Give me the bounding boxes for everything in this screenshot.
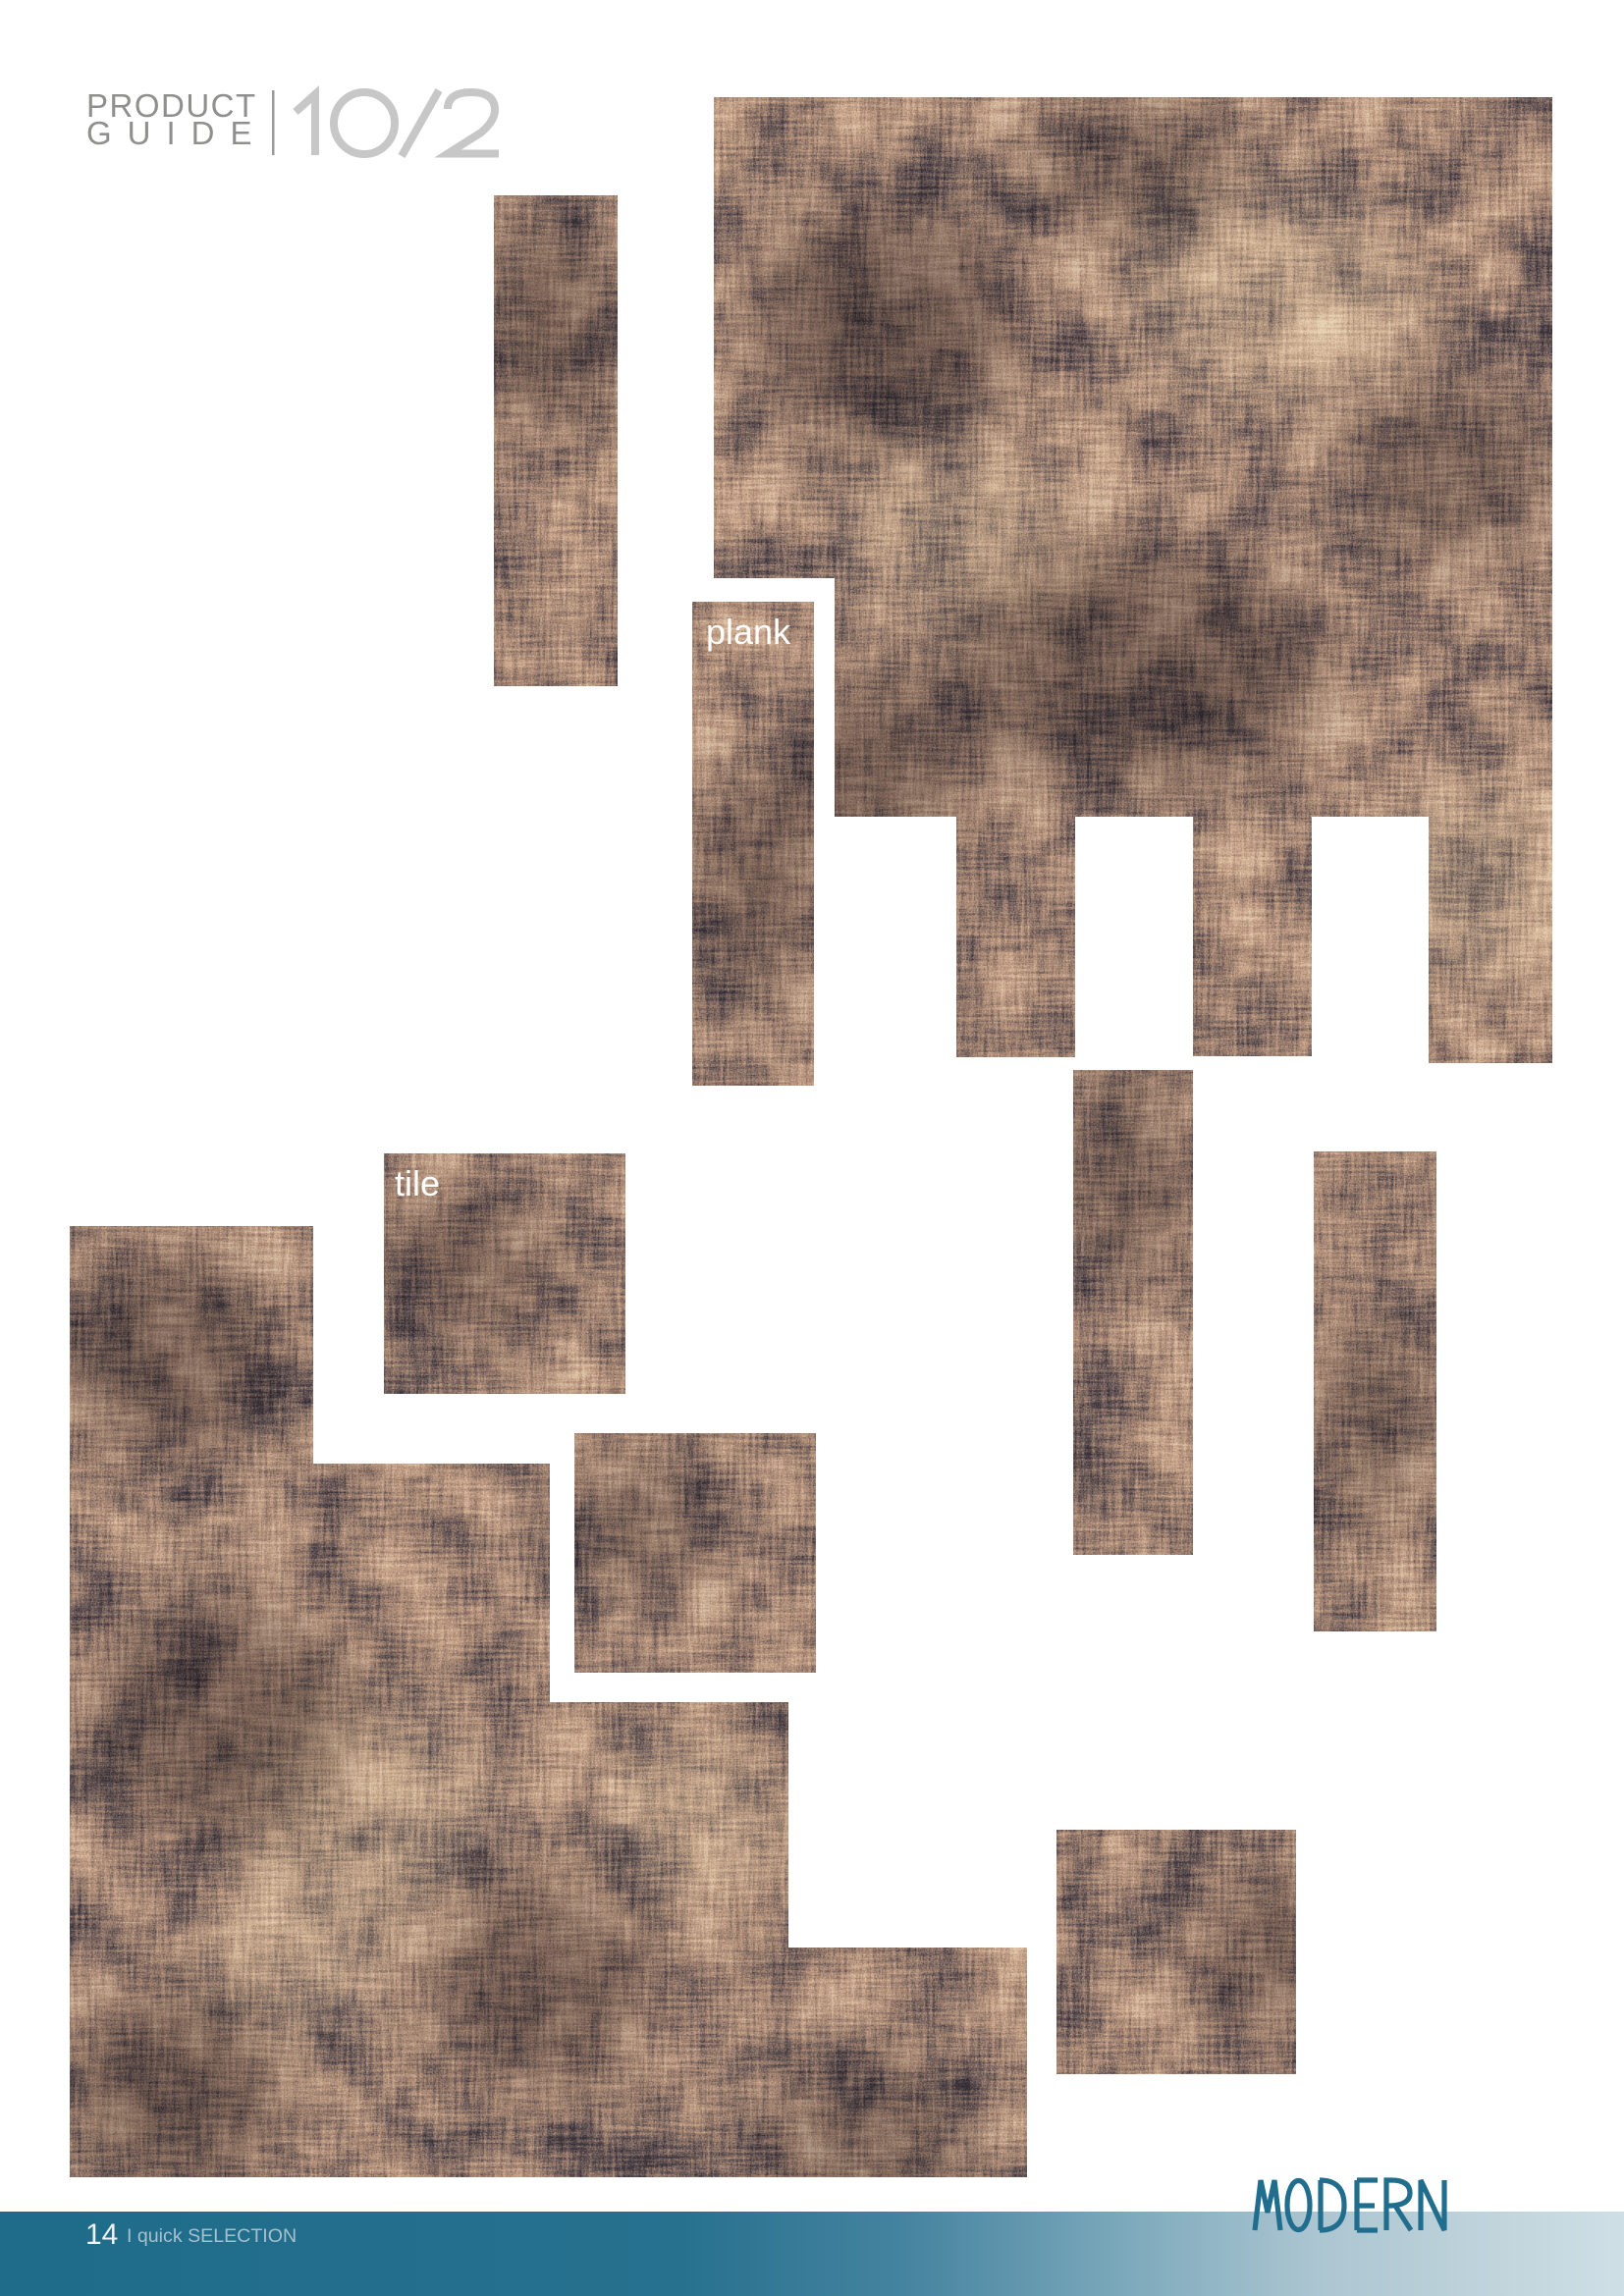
svg-text:GUIDE: GUIDE <box>86 115 268 151</box>
svg-text:plank: plank <box>706 612 791 652</box>
svg-text:tile: tile <box>395 1163 440 1203</box>
svg-text:I quick SELECTION: I quick SELECTION <box>127 2225 297 2247</box>
svg-text:14: 14 <box>85 2218 118 2251</box>
